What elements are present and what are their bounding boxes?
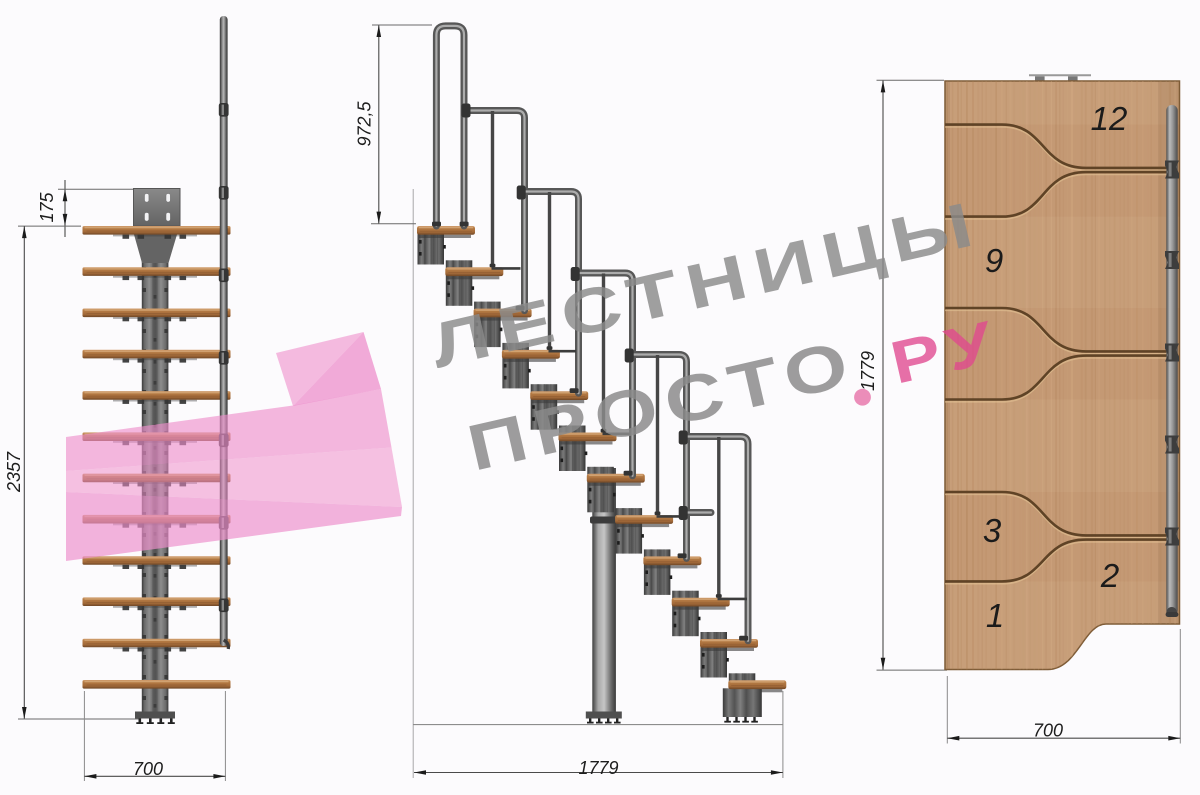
svg-text:3: 3 [983,512,1002,549]
svg-text:12: 12 [1091,100,1128,137]
svg-text:972,5: 972,5 [355,100,375,146]
svg-text:700: 700 [133,759,163,779]
svg-text:9: 9 [985,242,1003,279]
svg-text:175: 175 [37,192,57,223]
svg-text:1: 1 [986,597,1004,634]
svg-text:1779: 1779 [578,758,618,778]
svg-text:1779: 1779 [858,351,878,391]
svg-text:700: 700 [1033,720,1063,740]
svg-text:2357: 2357 [4,451,24,493]
svg-text:2: 2 [1100,557,1119,594]
